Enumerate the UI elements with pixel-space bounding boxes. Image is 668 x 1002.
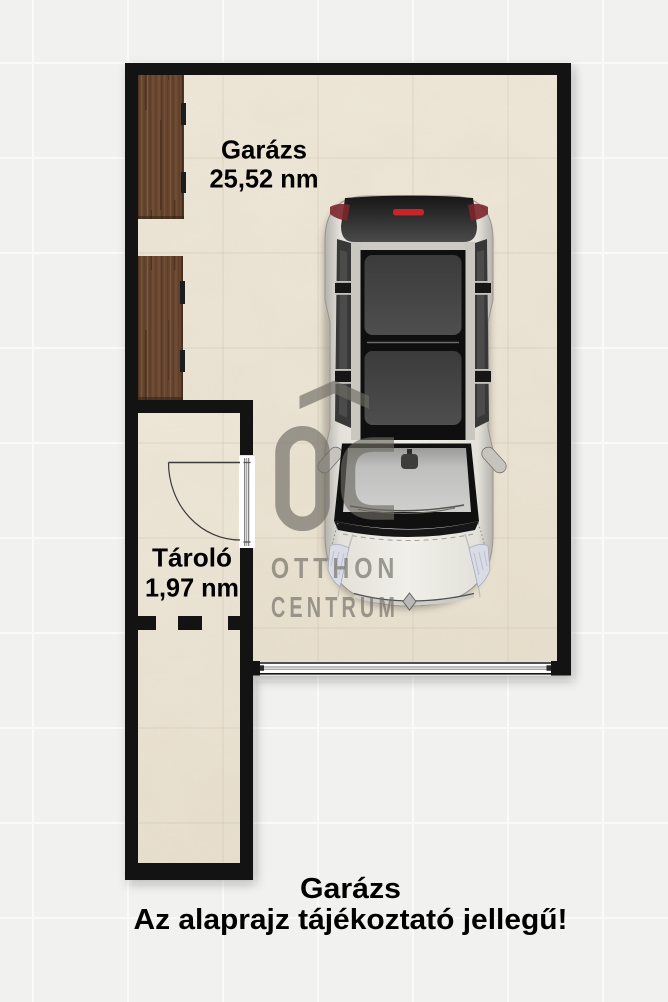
svg-text:Garázs: Garázs (221, 134, 307, 164)
svg-text:25,52 nm: 25,52 nm (210, 164, 319, 194)
svg-text:Az alaprajz tájékoztató jelleg: Az alaprajz tájékoztató jellegű! (134, 904, 568, 936)
svg-text:Tároló: Tároló (152, 543, 232, 573)
svg-text:CENTRUM: CENTRUM (271, 592, 399, 624)
svg-text:Garázs: Garázs (300, 873, 401, 905)
svg-text:OTTHON: OTTHON (271, 552, 399, 585)
svg-text:1,97 nm: 1,97 nm (145, 573, 239, 603)
